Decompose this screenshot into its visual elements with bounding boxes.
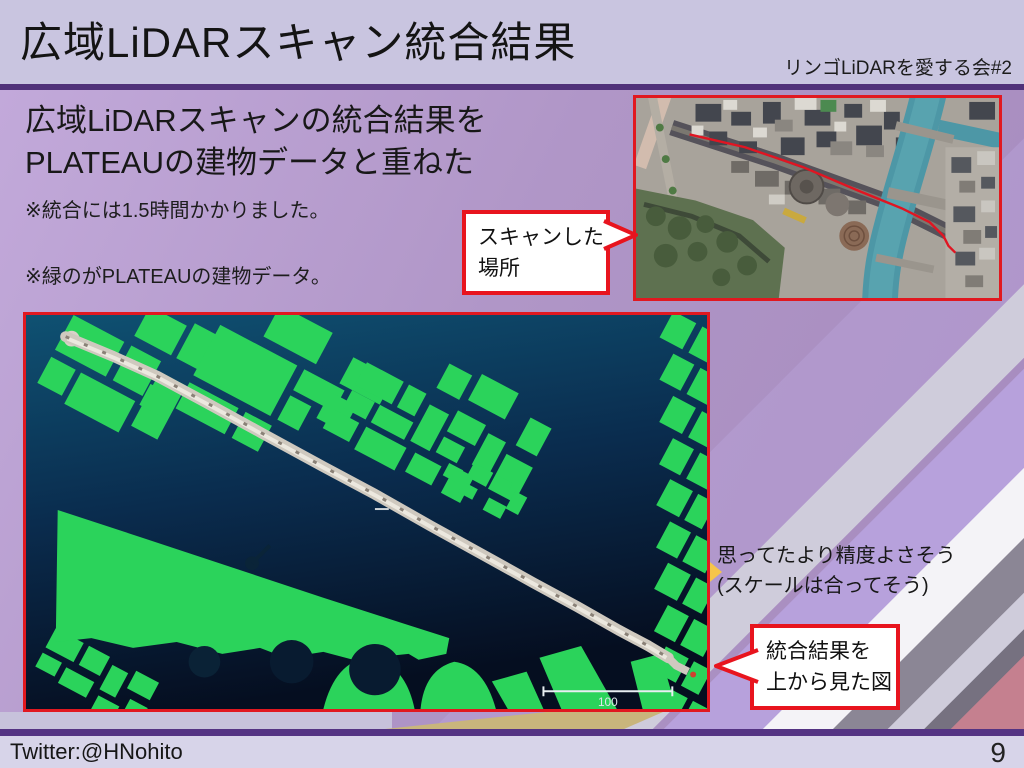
heading-line-2: PLATEAUの建物データと重ねた [25,142,487,184]
note-integration-time: ※統合には1.5時間かかりました。 [25,194,330,223]
body-heading: 広域LiDARスキャンの統合結果を PLATEAUの建物データと重ねた [25,100,487,184]
heading-line-1: 広域LiDARスキャンの統合結果を [25,100,487,142]
callout-arrow-left-icon [712,647,760,685]
slide-body: 広域LiDARスキャンの統合結果を PLATEAUの建物データと重ねた ※統合に… [0,90,1024,729]
result-callout-line-1: 統合結果を [766,636,884,667]
callout-arrow-right-icon [602,218,640,252]
twitter-handle: Twitter:@HNohito [10,739,183,765]
comment-line-2: (スケールは合ってそう) [717,571,956,601]
footer-divider [0,729,1024,736]
aerial-photo [636,98,999,298]
scan-callout-line-1: スキャンした [478,222,594,253]
footer: Twitter:@HNohito 9 [0,736,1024,768]
page-number: 9 [990,737,1006,768]
comment-line-1: 思ってたより精度よさそう [717,541,956,571]
title-bar: 広域LiDARスキャン統合結果 リンゴLiDARを愛する会#2 [0,0,1024,84]
presentation-slide: 広域LiDARスキャン統合結果 リンゴLiDARを愛する会#2 広域LiDARス… [0,0,1024,768]
background-stripe [0,712,392,729]
event-name: リンゴLiDARを愛する会#2 [784,53,1012,80]
aerial-photo-figure [633,95,1002,301]
scan-callout-line-2: 場所 [478,253,594,284]
scale-label: 100 [598,695,618,709]
scan-location-callout: スキャンした 場所 [462,210,610,295]
pointcloud-image: 100 [26,315,707,709]
background-stripe [385,712,663,729]
accuracy-comment: 思ってたより精度よさそう (スケールは合ってそう) [717,541,956,601]
result-view-callout: 統合結果を 上から見た図 [750,624,900,710]
result-callout-line-2: 上から見た図 [766,667,884,698]
pointcloud-figure: 100 [23,312,710,712]
note-green-plateau: ※緑のがPLATEAUの建物データ。 [25,260,331,289]
page-title: 広域LiDARスキャン統合結果 [20,9,576,70]
